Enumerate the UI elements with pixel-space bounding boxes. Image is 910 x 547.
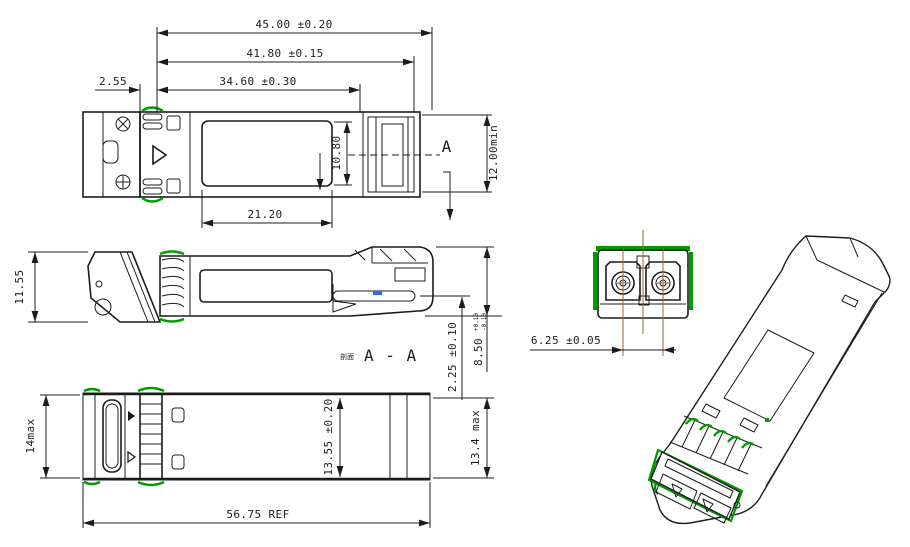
section-letter: A — [442, 137, 453, 156]
dim-connector-depth: 12.00min — [487, 125, 500, 181]
bail-latch — [88, 252, 160, 322]
dim-height: 11.55 — [13, 269, 26, 304]
side-view: 11.55 2.25 ±0.10 8.50 +0.10 -0.10 剖面 A -… — [13, 247, 502, 400]
bottom-hole-1 — [172, 408, 184, 422]
dim-label-length: 21.20 — [247, 208, 282, 221]
dim-overall-length: 45.00 ±0.20 — [255, 18, 332, 31]
drawing-sheet: A 45.00 ±0.20 41.80 ±0.15 34.60 ±0.30 2.… — [0, 0, 910, 547]
dim-overall-ref: 56.75 REF — [226, 508, 289, 521]
body-outline — [140, 112, 420, 197]
screw-bottom-icon — [116, 175, 130, 189]
dim-nose-height: 8.50 — [472, 338, 485, 366]
emi-comb — [84, 388, 164, 485]
dim-pcb-to-bottom: 2.25 ±0.10 — [446, 322, 459, 392]
bottom-view: 14max 13.55 ±0.20 13.4 max 56.75 REF — [24, 388, 494, 528]
top-view: A 45.00 ±0.20 41.80 ±0.15 34.60 ±0.30 2.… — [83, 18, 500, 228]
section-title: A - A — [364, 346, 417, 365]
gasket-right — [689, 252, 693, 310]
dim-rear-width: 13.4 max — [469, 410, 482, 466]
emi-fingers-side — [160, 252, 184, 322]
gasket-left — [593, 252, 597, 310]
iso-green-dot — [765, 418, 769, 422]
label-area — [202, 121, 332, 186]
emi-fingers-bottom — [142, 179, 180, 202]
emi-fingers-top — [142, 108, 180, 131]
dim-nose-tol-upper: +0.10 — [473, 313, 480, 331]
front-view: 6.25 ±0.05 — [530, 230, 693, 356]
section-cut-A: A — [442, 137, 453, 220]
section-title-group: 剖面 A - A — [340, 346, 417, 365]
section-title-prefix: 剖面 — [340, 352, 354, 361]
bottom-body-outline — [83, 393, 430, 480]
dim-body-length: 34.60 ±0.30 — [219, 75, 296, 88]
iso-view — [649, 236, 890, 523]
dim-gasket-offset: 2.55 — [99, 75, 127, 88]
bottom-hole-2 — [172, 455, 184, 469]
front-block-outline — [83, 112, 140, 197]
dim-lc-pitch: 6.25 ±0.05 — [531, 334, 601, 347]
bail-tab — [103, 141, 118, 163]
orientation-triangle-icon — [153, 146, 166, 164]
dim-nose-tol-lower: -0.10 — [481, 313, 488, 331]
dim-body-width: 13.55 ±0.20 — [322, 398, 335, 475]
side-label-recess — [200, 270, 332, 302]
dim-latch-length: 41.80 ±0.15 — [246, 47, 323, 60]
dim-front-width: 14max — [24, 418, 37, 453]
side-body-outline — [160, 247, 433, 316]
screw-top-icon — [116, 117, 130, 131]
pcb-highlight — [373, 291, 382, 295]
lc-front-structure — [95, 395, 135, 478]
front-view-dimensions: 6.25 ±0.05 — [530, 334, 676, 350]
engineering-drawing: A 45.00 ±0.20 41.80 ±0.15 34.60 ±0.30 2.… — [0, 0, 910, 547]
dim-label-width: 10.80 — [330, 135, 343, 170]
pcb-section — [333, 284, 415, 312]
